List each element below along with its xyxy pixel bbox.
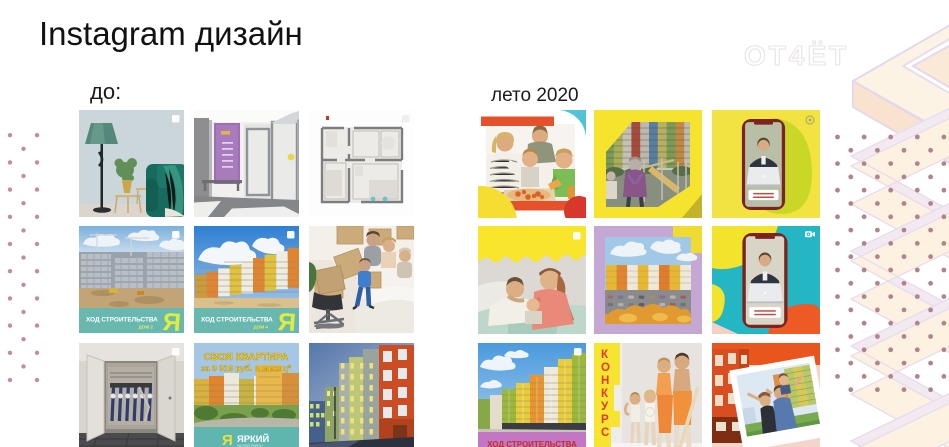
svg-text:Я: Я	[162, 308, 182, 333]
svg-text:ХОД СТРОИТЕЛЬСТВА: ХОД СТРОИТЕЛЬСТВА	[201, 317, 273, 324]
svg-text:ХОД СТРОИТЕЛЬСТВА: ХОД СТРОИТЕЛЬСТВА	[86, 317, 158, 324]
svg-text:ДОМ 4: ДОМ 4	[253, 325, 268, 330]
svg-text:С: С	[601, 427, 609, 439]
svg-text:за 9 919 руб. в месяц*: за 9 919 руб. в месяц*	[201, 363, 292, 373]
svg-text:К: К	[601, 388, 609, 400]
svg-text:ДОМ 2: ДОМ 2	[138, 325, 153, 330]
svg-text:Н: Н	[601, 375, 609, 387]
svg-text:ХОД СТРОИТЕЛЬСТВА: ХОД СТРОИТЕЛЬСТВА	[487, 440, 577, 447]
svg-text:О: О	[601, 362, 610, 374]
svg-text:Я: Я	[277, 308, 297, 333]
svg-text:СВОЯ КВАРТИРА: СВОЯ КВАРТИРА	[203, 352, 288, 363]
svg-text:К: К	[601, 349, 609, 361]
svg-text:Р: Р	[601, 414, 609, 426]
svg-text:ЯРКИЙ: ЯРКИЙ	[237, 433, 269, 444]
svg-text:У: У	[601, 401, 609, 413]
svg-text:Я: Я	[222, 432, 233, 447]
